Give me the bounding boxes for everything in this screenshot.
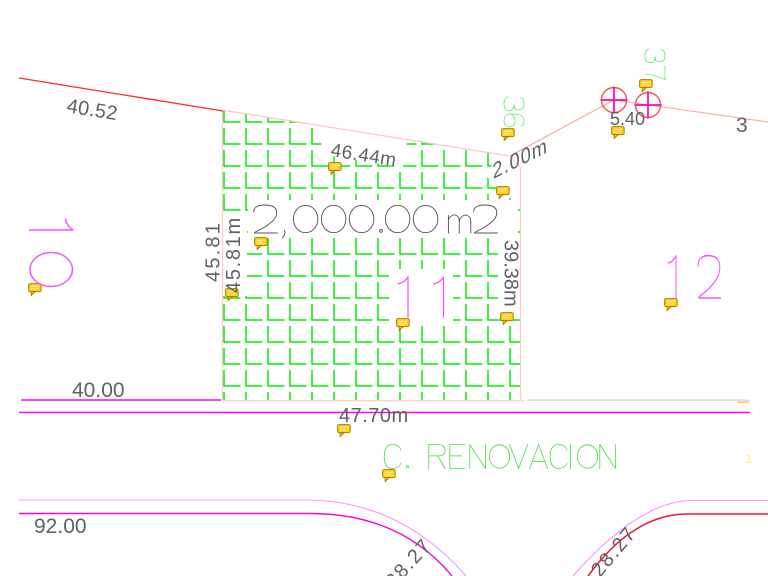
svg-text:47.70m: 47.70m: [339, 405, 409, 427]
svg-text:39.38m: 39.38m: [500, 240, 522, 307]
svg-text:92.00: 92.00: [34, 515, 87, 538]
svg-text:40.00: 40.00: [72, 379, 125, 402]
svg-text:45.81: 45.81: [203, 221, 225, 282]
svg-text:45.81m: 45.81m: [223, 216, 245, 293]
svg-text:3: 3: [736, 114, 749, 137]
svg-text:5.40: 5.40: [610, 109, 645, 129]
svg-text:1: 1: [745, 450, 753, 466]
